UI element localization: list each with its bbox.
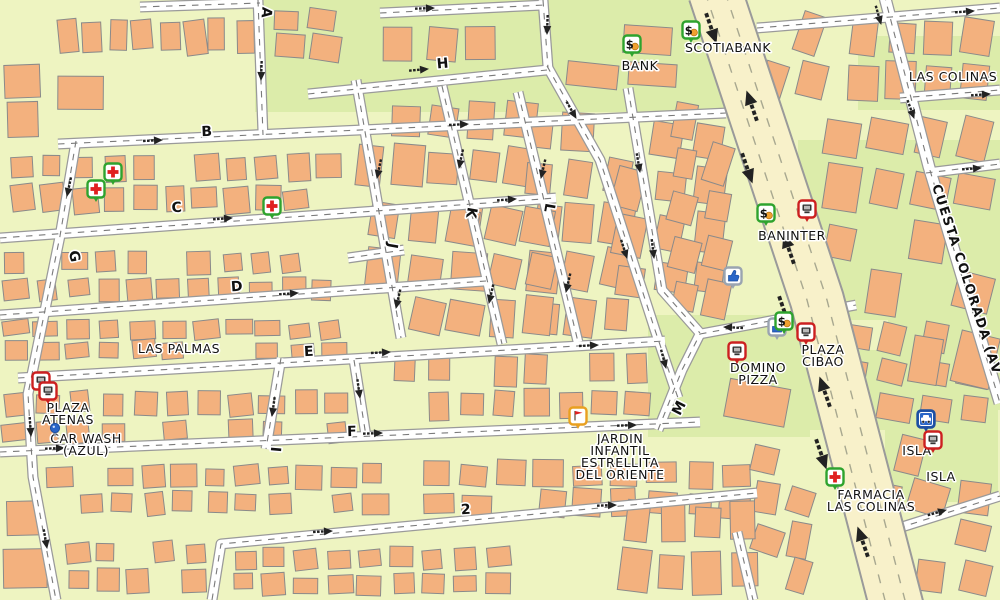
building — [591, 391, 617, 415]
building — [256, 343, 278, 358]
building — [95, 251, 116, 272]
building — [58, 76, 104, 109]
poi-label: SCOTIABANK — [685, 40, 771, 55]
street-label-f: F — [347, 424, 357, 440]
building — [4, 64, 41, 98]
building — [81, 22, 102, 53]
poi-label: BANINTER — [758, 228, 826, 243]
building — [156, 279, 180, 299]
building — [293, 578, 318, 594]
building — [110, 20, 127, 51]
building — [661, 504, 685, 542]
building — [251, 252, 271, 274]
building — [795, 60, 829, 100]
building — [786, 521, 812, 559]
poi-label: (AZUL) — [63, 443, 109, 458]
street-label-a: A — [258, 6, 275, 18]
building — [65, 342, 90, 359]
building — [453, 576, 476, 592]
building — [166, 391, 188, 416]
building — [325, 393, 348, 413]
building — [750, 444, 780, 475]
building — [424, 493, 455, 513]
building — [126, 568, 150, 593]
building — [69, 571, 89, 589]
building — [280, 253, 301, 273]
building — [223, 253, 242, 272]
building — [522, 295, 553, 336]
building — [524, 388, 550, 416]
building — [961, 395, 988, 422]
building — [429, 392, 449, 421]
building — [205, 469, 224, 486]
building — [261, 572, 286, 596]
building — [160, 22, 180, 50]
building — [328, 575, 354, 594]
building — [822, 162, 863, 212]
poi-label: PIZZA — [738, 372, 777, 387]
building — [145, 491, 165, 516]
building — [128, 251, 147, 274]
building — [126, 278, 153, 301]
building — [363, 463, 382, 483]
building — [163, 321, 186, 338]
building — [705, 191, 732, 222]
building — [689, 462, 713, 490]
map-svg[interactable]: ABCDEFGHIJKLM2CUESTA COLORADA (AV LAS PA… — [0, 0, 1000, 600]
building — [187, 251, 211, 275]
building — [108, 468, 133, 485]
building — [493, 390, 515, 417]
building — [193, 319, 221, 341]
building — [103, 394, 123, 416]
building — [153, 540, 175, 563]
building — [960, 17, 995, 57]
street-label-d: D — [230, 279, 243, 296]
building — [2, 319, 30, 337]
building — [486, 573, 511, 594]
building — [496, 459, 526, 486]
poi-label: LAS COLINAS — [909, 69, 997, 84]
building — [172, 490, 192, 511]
building — [274, 11, 298, 31]
building — [331, 467, 357, 487]
building — [307, 7, 336, 31]
building — [429, 357, 450, 380]
building — [454, 547, 476, 571]
building — [226, 158, 247, 181]
building — [422, 573, 445, 593]
building — [822, 119, 862, 159]
building — [562, 202, 594, 243]
building — [785, 557, 813, 594]
street-label-c: C — [171, 200, 182, 217]
building — [255, 320, 280, 335]
building — [233, 464, 260, 486]
building — [287, 153, 311, 182]
building — [293, 548, 318, 571]
building — [99, 342, 118, 358]
building — [97, 568, 119, 591]
building — [268, 466, 289, 485]
building — [494, 356, 518, 387]
building — [2, 278, 29, 301]
building — [191, 187, 217, 208]
building — [356, 575, 381, 596]
building — [134, 391, 157, 416]
building — [67, 319, 90, 339]
building — [68, 278, 90, 297]
building — [876, 393, 914, 424]
building — [459, 464, 487, 487]
svg-text:$: $ — [626, 37, 634, 51]
building — [865, 269, 902, 317]
building — [566, 61, 619, 90]
street-label-h: H — [436, 56, 449, 73]
building — [111, 493, 132, 512]
svg-text:$: $ — [778, 314, 786, 328]
building — [465, 26, 495, 59]
building — [328, 550, 351, 569]
building — [275, 33, 305, 58]
building — [289, 323, 311, 339]
building — [99, 279, 119, 302]
building — [3, 549, 47, 589]
building — [605, 298, 629, 331]
building — [484, 204, 523, 245]
street-label-b: B — [201, 124, 212, 141]
building — [282, 189, 309, 210]
building — [866, 117, 909, 154]
building — [134, 156, 155, 180]
building — [362, 494, 389, 515]
building — [785, 486, 816, 517]
building — [332, 493, 353, 512]
building — [228, 393, 254, 417]
building — [130, 19, 153, 50]
building — [130, 321, 156, 340]
building — [1, 422, 28, 442]
building — [533, 459, 564, 487]
building — [80, 494, 103, 513]
building — [590, 353, 615, 381]
building — [383, 27, 412, 61]
building — [722, 465, 750, 487]
building — [691, 551, 721, 595]
building — [486, 546, 511, 567]
building — [470, 150, 500, 182]
building — [358, 549, 381, 568]
building — [99, 320, 118, 338]
building — [694, 507, 721, 538]
poi-label: DEL ORIENTE — [576, 467, 665, 482]
building — [198, 391, 221, 415]
building — [626, 353, 647, 383]
building — [955, 519, 992, 552]
building — [390, 546, 413, 567]
building — [208, 492, 227, 513]
building — [295, 465, 322, 490]
building — [391, 143, 426, 187]
building — [394, 573, 415, 594]
building — [186, 544, 206, 564]
building — [183, 19, 208, 56]
building — [57, 18, 79, 53]
building — [11, 156, 34, 177]
building — [208, 18, 225, 50]
building — [170, 464, 197, 487]
building — [104, 188, 123, 212]
building — [524, 354, 548, 384]
building — [96, 543, 114, 561]
building — [237, 21, 255, 54]
building — [182, 569, 207, 593]
building — [564, 159, 593, 198]
building — [235, 494, 256, 511]
street-label-2: 2 — [461, 502, 472, 518]
street-label-i: I — [267, 446, 283, 453]
building — [959, 560, 993, 597]
building — [235, 551, 256, 570]
building — [319, 320, 341, 341]
poi-label: BANK — [622, 58, 659, 73]
building — [46, 467, 73, 488]
building — [953, 173, 995, 210]
poi-label: LAS PALMAS — [138, 341, 220, 356]
svg-text:$: $ — [760, 206, 768, 220]
building — [223, 186, 250, 215]
building — [269, 493, 292, 514]
building — [296, 390, 318, 414]
building — [847, 65, 879, 101]
poi-label: CIBAO — [802, 354, 844, 369]
building — [408, 297, 446, 336]
building — [142, 464, 166, 488]
building — [445, 299, 485, 336]
building — [309, 33, 342, 63]
building — [194, 153, 220, 181]
building — [7, 101, 38, 137]
poi-label: ATENAS — [42, 412, 94, 427]
street-label-e: E — [304, 344, 314, 360]
building — [134, 185, 158, 210]
building — [424, 461, 450, 486]
building — [65, 542, 91, 564]
building — [226, 319, 253, 334]
building — [923, 21, 952, 55]
svg-text:$: $ — [685, 23, 693, 37]
poi-label: LAS COLINAS — [827, 499, 915, 514]
building — [658, 555, 684, 590]
building — [43, 155, 60, 175]
building — [4, 252, 24, 273]
building — [422, 549, 442, 570]
map-canvas[interactable]: ABCDEFGHIJKLM2CUESTA COLORADA (AV LAS PA… — [0, 0, 1000, 600]
building — [10, 183, 35, 212]
building — [5, 341, 27, 361]
building — [263, 547, 284, 566]
building — [617, 547, 652, 593]
building — [163, 420, 188, 440]
building — [254, 155, 278, 180]
building — [234, 573, 253, 589]
poi-label: ISLA — [926, 469, 955, 484]
building — [461, 393, 484, 415]
building — [316, 154, 342, 178]
building — [624, 391, 651, 416]
